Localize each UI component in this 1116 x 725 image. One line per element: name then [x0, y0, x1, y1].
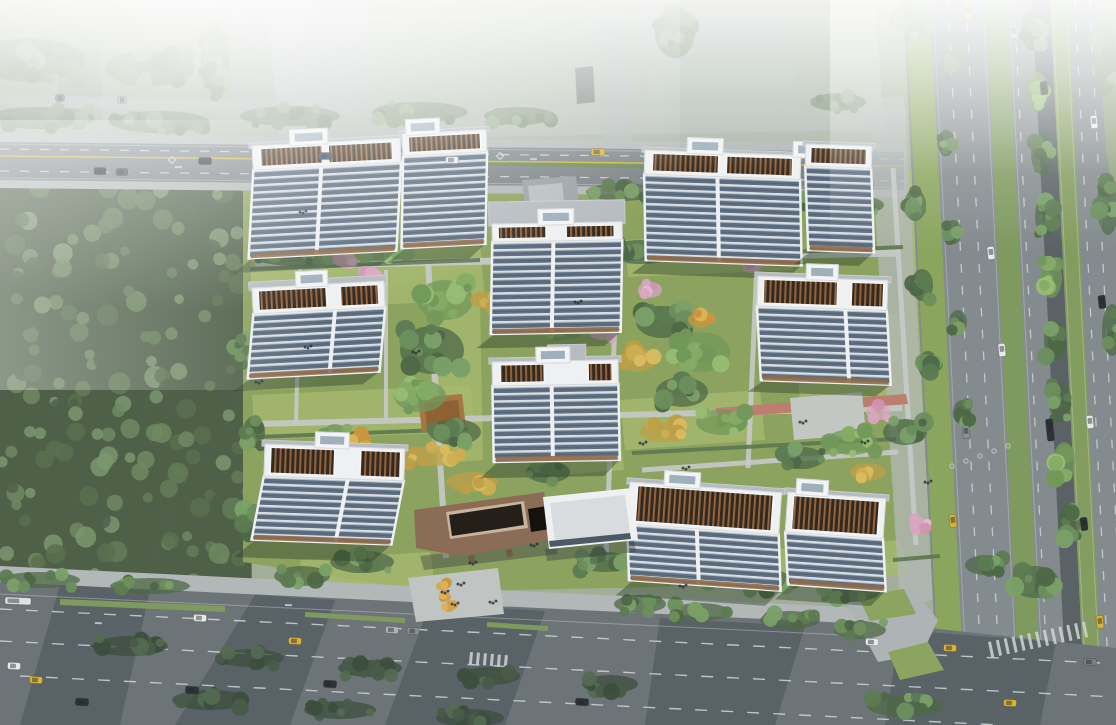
pedestrian	[444, 592, 447, 595]
tree-canopy	[907, 425, 918, 436]
car-windshield	[950, 517, 955, 523]
pedestrian	[418, 350, 421, 353]
tree-canopy	[808, 610, 820, 622]
tree-canopy	[220, 645, 235, 660]
gate-pillar-2	[506, 549, 513, 557]
forest-canopy-blob	[25, 488, 35, 498]
tree-canopy	[1048, 456, 1063, 471]
pedestrian	[924, 481, 927, 484]
tree-canopy	[916, 703, 928, 715]
pedestrian	[460, 584, 463, 587]
forest-canopy-blob	[176, 399, 196, 419]
lane-arrow-marking	[95, 622, 102, 624]
pedestrian	[475, 561, 478, 564]
forest-canopy-blob	[223, 409, 235, 421]
tree-canopy	[856, 472, 867, 483]
tree-canopy	[411, 446, 419, 454]
tree-canopy	[24, 572, 32, 580]
pedestrian	[463, 582, 466, 585]
penthouse-skylight	[811, 268, 833, 277]
tree-canopy	[910, 526, 920, 536]
car	[1003, 699, 1016, 707]
tree-canopy	[582, 671, 597, 686]
tree-canopy	[849, 450, 856, 457]
tree-canopy	[411, 379, 419, 387]
forest-canopy-blob	[231, 471, 244, 484]
tree-canopy	[501, 665, 517, 681]
forest-canopy-blob	[125, 452, 136, 463]
tree-canopy	[458, 432, 472, 446]
forest-canopy-blob	[178, 431, 194, 447]
tree-canopy	[156, 639, 164, 647]
car	[75, 698, 88, 706]
forest-canopy-blob	[99, 446, 118, 465]
tree-canopy	[462, 673, 479, 690]
pedestrian	[447, 590, 450, 593]
car	[998, 343, 1006, 357]
car-windshield	[326, 682, 332, 687]
tree-canopy	[284, 575, 297, 588]
pedestrian	[682, 467, 685, 470]
forest-canopy-blob	[97, 543, 116, 562]
car	[385, 626, 398, 634]
tree-canopy	[460, 483, 472, 495]
tree-canopy	[853, 622, 867, 636]
car-windshield	[963, 428, 968, 434]
car	[865, 638, 878, 646]
forest-canopy-blob	[92, 428, 104, 440]
tree-canopy	[328, 702, 338, 712]
forest-canopy-blob	[11, 500, 21, 510]
pedestrian	[536, 543, 539, 546]
tree-canopy	[654, 389, 674, 409]
tree-canopy	[669, 611, 680, 622]
pedestrian	[645, 441, 648, 444]
car-windshield	[7, 598, 19, 603]
forest-canopy-blob	[187, 545, 199, 557]
pedestrian	[457, 583, 460, 586]
car-windshield	[196, 616, 202, 621]
tree-canopy	[684, 359, 695, 370]
penthouse-skylight	[541, 351, 565, 359]
tree-canopy	[319, 563, 332, 576]
clubhouse-roof	[550, 495, 630, 541]
car	[323, 680, 336, 688]
tree-canopy	[687, 602, 703, 618]
car-windshield	[578, 700, 584, 705]
forest-canopy-blob	[222, 420, 236, 434]
tree-canopy	[277, 564, 287, 574]
lane-arrow-marking	[285, 604, 292, 606]
roof-louver-panel	[763, 279, 838, 306]
forest-canopy-blob	[151, 423, 171, 443]
building-facade-group	[478, 384, 620, 478]
tree-canopy	[603, 683, 620, 700]
car	[943, 644, 956, 652]
tree-canopy	[1047, 396, 1060, 409]
penthouse-skylight	[801, 483, 824, 493]
forest-canopy-blob	[68, 406, 83, 421]
tree-canopy	[634, 355, 646, 367]
pedestrian	[469, 562, 472, 565]
tree-canopy	[1037, 256, 1047, 266]
forest-canopy-blob	[49, 399, 68, 418]
tree-canopy	[721, 414, 729, 422]
glass-facade	[492, 384, 619, 462]
tree-canopy	[165, 581, 174, 590]
car-windshield	[10, 664, 16, 669]
tree-canopy	[449, 600, 458, 609]
tree-canopy	[867, 412, 879, 424]
pedestrian	[861, 441, 864, 444]
forest-canopy-blob	[112, 404, 125, 417]
car	[575, 698, 588, 706]
car	[1098, 295, 1106, 309]
tree-canopy	[18, 581, 30, 593]
car-windshield	[1087, 418, 1092, 424]
tree-canopy	[818, 448, 825, 455]
car-windshield	[1097, 618, 1102, 624]
tree-canopy	[919, 522, 931, 534]
pedestrian	[682, 586, 685, 589]
forest-canopy-blob	[107, 495, 123, 511]
gate-pillar-1	[468, 555, 475, 563]
pedestrian	[451, 603, 454, 606]
tree-canopy	[129, 638, 138, 647]
tree-canopy	[352, 655, 369, 672]
car-windshield	[999, 346, 1004, 352]
tree-canopy	[1039, 280, 1050, 291]
tree-canopy	[308, 701, 323, 716]
car	[7, 662, 20, 670]
tree-canopy	[426, 441, 438, 453]
tree-canopy	[440, 581, 448, 589]
tree-canopy	[788, 441, 803, 456]
tree-canopy	[695, 407, 707, 419]
tree-canopy	[922, 364, 939, 381]
architectural-rendering-aerial-view	[0, 0, 1116, 725]
tree-canopy	[1063, 413, 1071, 421]
tree-canopy	[451, 358, 471, 378]
car	[1080, 517, 1088, 531]
glass-facade	[757, 306, 891, 385]
tree-canopy	[693, 310, 701, 318]
pedestrian	[679, 585, 682, 588]
forest-canopy-blob	[120, 419, 140, 439]
car-windshield	[1099, 298, 1104, 304]
forest-canopy-blob	[101, 427, 115, 441]
building-facade-group	[613, 523, 781, 607]
tree-canopy	[268, 660, 280, 672]
tree-canopy	[342, 699, 352, 709]
tree-canopy	[482, 677, 495, 690]
pedestrian	[930, 480, 933, 483]
tree-canopy	[909, 513, 921, 525]
tree-canopy	[964, 399, 973, 408]
roof-louver-panel	[360, 450, 401, 477]
car-windshield	[868, 640, 874, 645]
tree-canopy	[1025, 575, 1033, 583]
tree-canopy	[484, 480, 492, 488]
tree-canopy	[1063, 393, 1072, 402]
tree-canopy	[888, 416, 899, 427]
tree-canopy	[667, 380, 678, 391]
tree-canopy	[1004, 577, 1024, 597]
car-windshield	[188, 688, 194, 693]
car	[1096, 615, 1104, 629]
pedestrian	[441, 591, 444, 594]
car	[288, 637, 301, 645]
tree-canopy	[818, 456, 825, 463]
tree-canopy	[647, 417, 661, 431]
forest-canopy-blob	[75, 527, 96, 548]
tree-canopy	[1036, 567, 1056, 587]
tree-canopy	[1046, 469, 1065, 488]
pedestrian	[454, 604, 457, 607]
forest-canopy-blob	[137, 451, 155, 469]
forest-canopy-blob	[79, 486, 98, 505]
tree-canopy	[867, 444, 882, 459]
tree-canopy	[123, 576, 135, 588]
pedestrian	[688, 466, 691, 469]
forest-canopy-blob	[94, 512, 111, 529]
car	[193, 614, 206, 622]
tree-canopy	[361, 670, 369, 678]
fog-layer	[830, 0, 1116, 250]
pedestrian	[495, 600, 498, 603]
tree-canopy	[204, 688, 221, 705]
car-windshield	[1081, 520, 1086, 526]
glass-facade	[252, 476, 404, 544]
tree-canopy	[394, 387, 408, 401]
tree-canopy	[829, 448, 838, 457]
forest-canopy-blob	[34, 427, 46, 439]
tree-canopy	[66, 582, 77, 593]
tree-canopy	[251, 646, 265, 660]
tree-canopy	[857, 423, 873, 439]
tree-canopy	[45, 570, 56, 581]
car	[962, 425, 970, 439]
tree-canopy	[1055, 530, 1074, 549]
roof-louver-panel	[500, 364, 544, 383]
tree-canopy	[441, 603, 449, 611]
tree-canopy	[249, 659, 260, 670]
tree-canopy	[721, 606, 733, 618]
pedestrian	[489, 601, 492, 604]
forest-canopy-blob	[6, 481, 18, 493]
tree-canopy	[421, 459, 429, 467]
pedestrian	[867, 440, 870, 443]
forest-canopy-blob	[209, 543, 230, 564]
tree-canopy	[433, 356, 453, 376]
tree-canopy	[437, 708, 446, 717]
pedestrian	[685, 468, 688, 471]
tree-canopy	[340, 670, 351, 681]
tree-canopy	[675, 429, 686, 440]
car-windshield	[1006, 701, 1012, 706]
tree-canopy	[433, 424, 450, 441]
car-windshield	[78, 700, 84, 705]
tree-canopy	[1037, 347, 1055, 365]
pedestrian	[927, 482, 930, 485]
tree-canopy	[872, 399, 885, 412]
car-windshield	[946, 646, 952, 651]
tree-canopy	[337, 708, 345, 716]
tree-canopy	[590, 557, 598, 565]
tree-canopy	[918, 418, 926, 426]
forest-canopy-blob	[212, 495, 222, 505]
tree-canopy	[366, 708, 374, 716]
roof-louver-panel	[791, 495, 879, 535]
tree-canopy	[578, 561, 588, 571]
tree-canopy	[400, 356, 420, 376]
tree-canopy	[911, 692, 921, 702]
tree-canopy	[642, 606, 655, 619]
tree-canopy	[439, 445, 449, 455]
pedestrian	[805, 420, 808, 423]
tree-canopy	[452, 708, 465, 721]
pedestrian	[530, 544, 533, 547]
car-windshield	[409, 629, 415, 634]
building-tower-east	[740, 262, 896, 397]
pedestrian	[472, 563, 475, 566]
forest-canopy-blob	[46, 544, 66, 564]
roof-louver-panel	[588, 363, 612, 381]
forest-canopy-blob	[160, 506, 178, 524]
pedestrian	[457, 602, 460, 605]
car	[185, 686, 198, 694]
tree-canopy	[736, 404, 753, 421]
tree-canopy	[150, 582, 159, 591]
forest-canopy-blob	[55, 443, 73, 461]
tree-canopy	[409, 396, 419, 406]
tree-canopy	[473, 477, 485, 489]
penthouse-skylight	[320, 436, 344, 445]
pedestrian	[685, 584, 688, 587]
forest-canopy-blob	[143, 493, 153, 503]
pedestrian	[802, 422, 805, 425]
tree-canopy	[678, 376, 696, 394]
forest-canopy-blob	[24, 426, 36, 438]
car	[949, 514, 957, 528]
car-windshield	[388, 628, 394, 633]
car-windshield	[32, 678, 38, 683]
car	[1086, 415, 1094, 429]
car	[407, 627, 419, 635]
tree-canopy	[404, 405, 414, 415]
tree-canopy	[782, 458, 794, 470]
tree-canopy	[864, 689, 882, 707]
pedestrian	[415, 352, 418, 355]
tree-canopy	[55, 568, 68, 581]
tree-canopy	[245, 427, 253, 435]
tree-canopy	[1043, 321, 1059, 337]
forest-canopy-blob	[186, 449, 201, 464]
car	[1083, 658, 1096, 666]
car-windshield	[1086, 660, 1092, 665]
forest-canopy-blob	[167, 463, 188, 484]
pedestrian	[642, 443, 645, 446]
tree-canopy	[250, 415, 262, 427]
building-facade-group	[771, 531, 886, 607]
tree-canopy	[94, 632, 105, 643]
building-facade-group	[743, 305, 891, 396]
tree-canopy	[174, 695, 188, 709]
tree-canopy	[962, 413, 976, 427]
forest-canopy-blob	[167, 403, 176, 412]
tree-canopy	[646, 349, 662, 365]
tree-canopy	[880, 692, 890, 702]
tree-canopy	[978, 555, 994, 571]
tree-canopy	[993, 566, 1005, 578]
car-windshield	[291, 639, 297, 644]
pedestrian	[799, 421, 802, 424]
pedestrian	[492, 602, 495, 605]
pedestrian	[412, 351, 415, 354]
pedestrian	[533, 545, 536, 548]
tree-canopy	[661, 430, 669, 438]
roof-louver-panel	[851, 282, 884, 307]
forest-canopy-blob	[162, 532, 180, 550]
forest-canopy-blob	[66, 422, 85, 441]
tree-canopy	[384, 668, 398, 682]
tree-canopy	[231, 699, 248, 716]
pedestrian	[639, 442, 642, 445]
car	[5, 597, 31, 605]
tree-canopy	[896, 702, 914, 720]
car	[29, 676, 42, 684]
tree-canopy	[620, 607, 630, 617]
forest-canopy-blob	[216, 455, 232, 471]
tree-canopy	[923, 292, 937, 306]
pedestrian	[864, 442, 867, 445]
forest-canopy-blob	[151, 545, 163, 557]
forest-canopy-blob	[19, 515, 31, 527]
forest-canopy-blob	[5, 446, 17, 458]
tree-canopy	[766, 605, 782, 621]
tree-canopy	[358, 430, 369, 441]
scene-root	[0, 0, 1116, 725]
tree-canopy	[915, 272, 932, 289]
tree-canopy	[384, 566, 391, 573]
tree-canopy	[1063, 504, 1080, 521]
forest-canopy-blob	[182, 531, 192, 541]
tree-canopy	[946, 324, 957, 335]
tree-canopy	[879, 618, 888, 627]
tree-canopy	[1102, 336, 1115, 349]
tree-canopy	[729, 427, 739, 437]
building-tower-center-south	[478, 344, 623, 478]
tree-canopy	[371, 666, 386, 681]
tree-canopy	[547, 476, 558, 487]
tree-canopy	[454, 448, 467, 461]
tree-canopy	[712, 355, 730, 373]
roof-louver-panel	[270, 447, 335, 475]
scene-canvas	[0, 0, 1116, 725]
fog-layer	[0, 120, 330, 390]
tree-canopy	[788, 613, 798, 623]
forest-canopy-blob	[193, 426, 211, 444]
forest-canopy-blob	[190, 497, 210, 517]
